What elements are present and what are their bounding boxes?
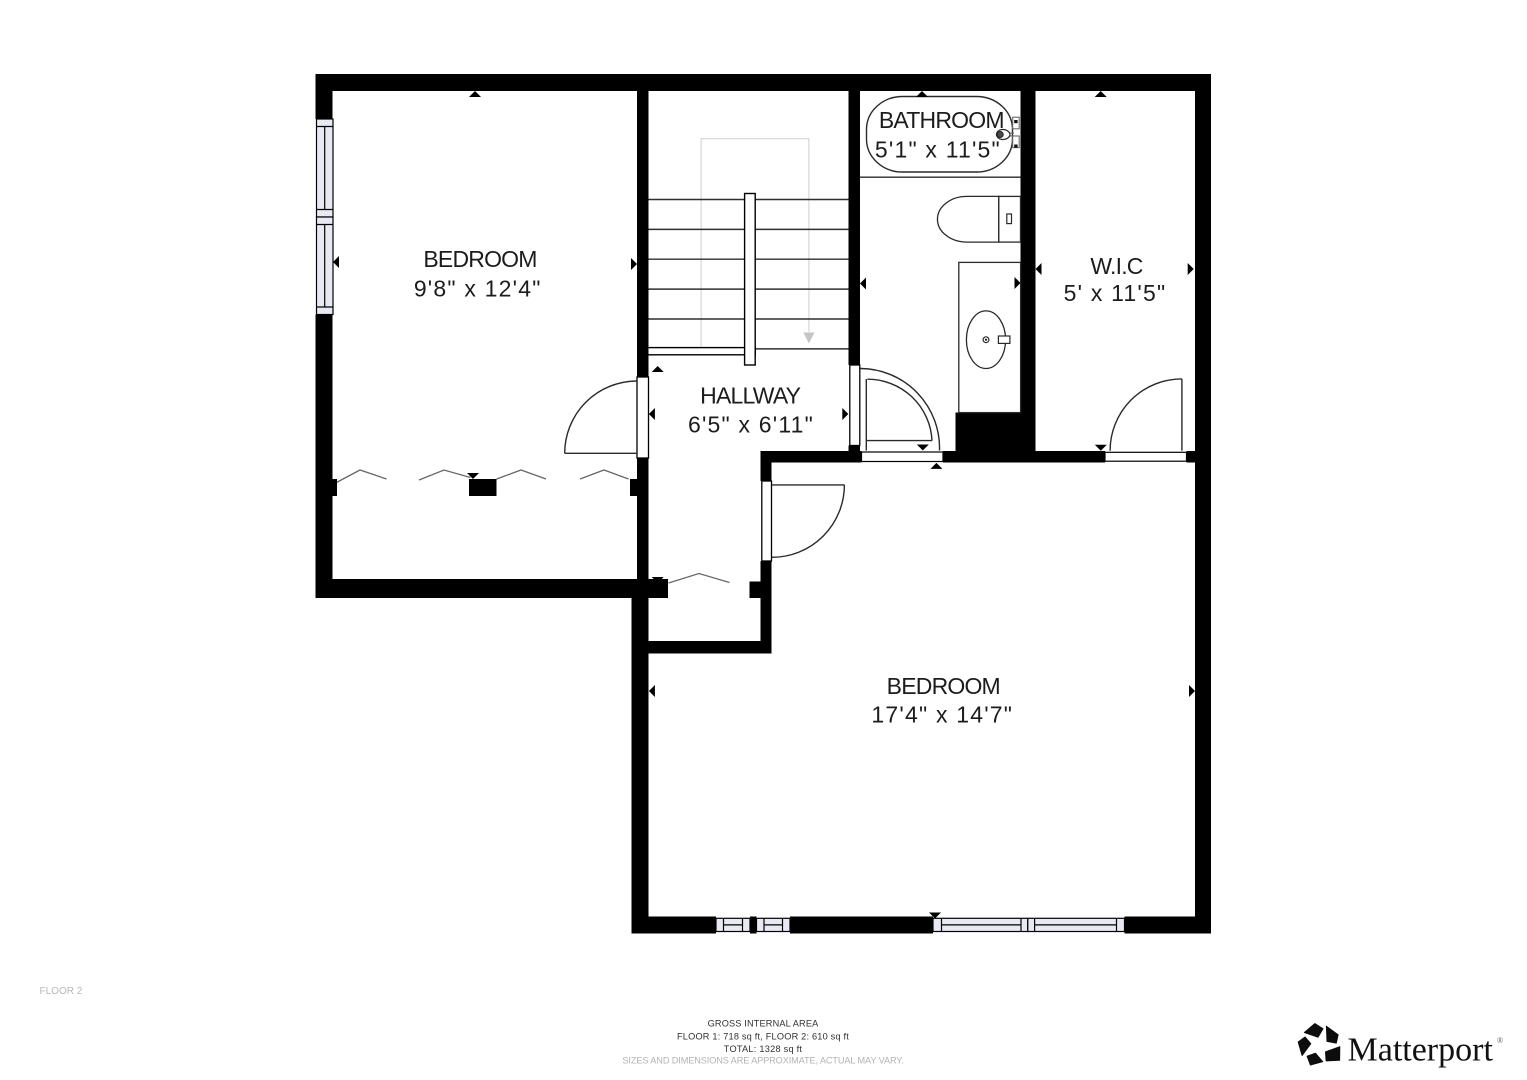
- svg-text:®: ®: [1497, 1035, 1504, 1045]
- svg-text:SIZES AND DIMENSIONS ARE APPRO: SIZES AND DIMENSIONS ARE APPROXIMATE, AC…: [622, 1056, 903, 1066]
- svg-text:5' x 11'5": 5' x 11'5": [1064, 280, 1167, 306]
- svg-text:FLOOR 1: 718 sq ft, FLOOR 2: 6: FLOOR 1: 718 sq ft, FLOOR 2: 610 sq ft: [677, 1031, 849, 1041]
- svg-text:TOTAL: 1328 sq ft: TOTAL: 1328 sq ft: [724, 1044, 803, 1054]
- svg-text:6'5" x 6'11": 6'5" x 6'11": [688, 412, 814, 438]
- svg-text:GROSS INTERNAL AREA: GROSS INTERNAL AREA: [708, 1019, 819, 1029]
- svg-text:17'4" x 14'7": 17'4" x 14'7": [871, 701, 1013, 727]
- svg-text:HALLWAY: HALLWAY: [700, 383, 801, 409]
- svg-text:5'1" x 11'5": 5'1" x 11'5": [875, 136, 1001, 162]
- svg-text:9'8" x 12'4": 9'8" x 12'4": [414, 276, 542, 302]
- svg-text:BATHROOM: BATHROOM: [879, 107, 1004, 133]
- svg-text:W.I.C: W.I.C: [1090, 253, 1142, 279]
- svg-text:Matterport: Matterport: [1348, 1032, 1494, 1069]
- svg-text:BEDROOM: BEDROOM: [887, 673, 1000, 699]
- svg-text:FLOOR 2: FLOOR 2: [40, 986, 83, 997]
- svg-text:BEDROOM: BEDROOM: [423, 246, 536, 272]
